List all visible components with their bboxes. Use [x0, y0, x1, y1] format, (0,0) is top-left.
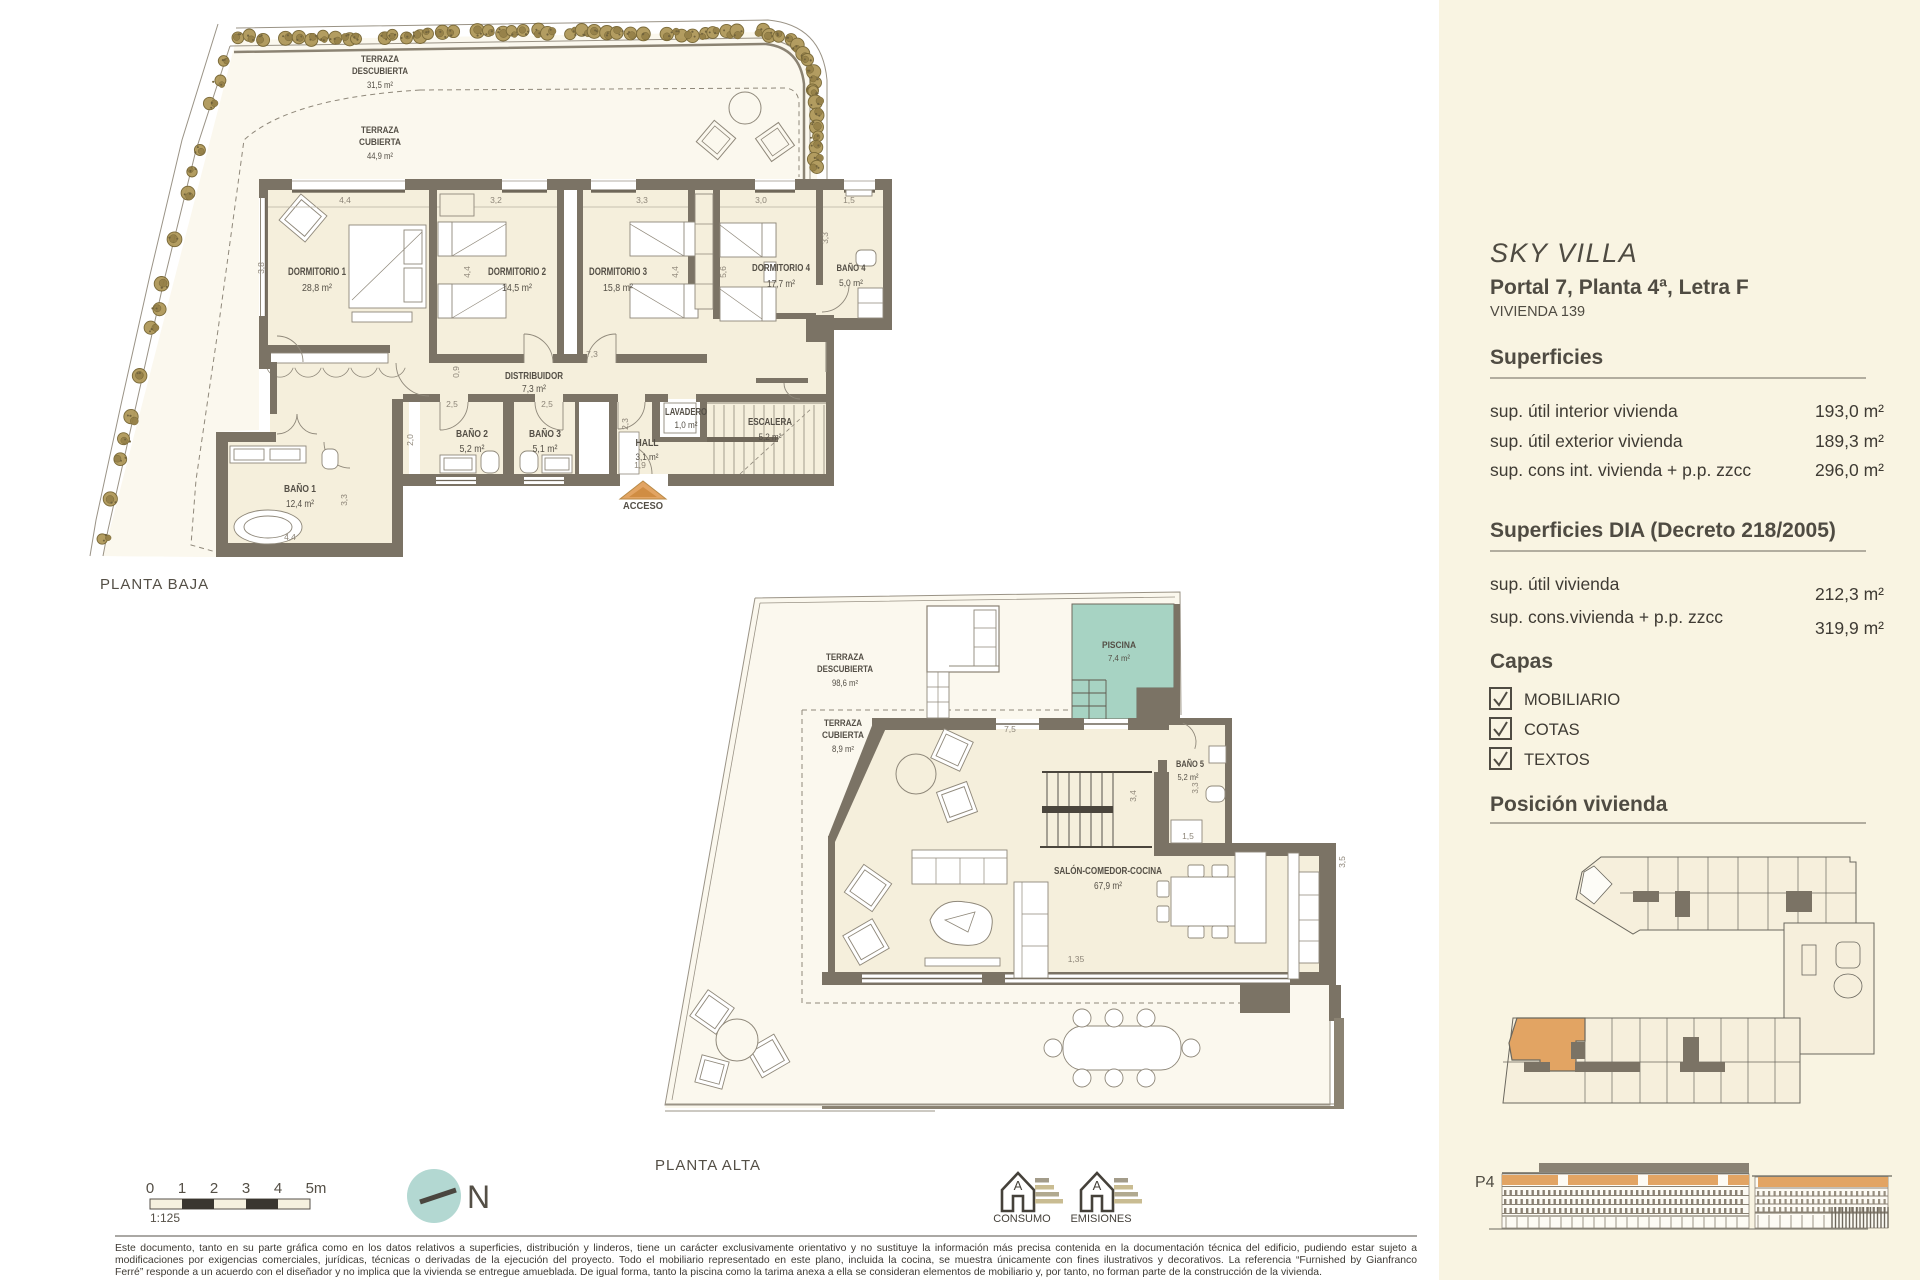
svg-text:14,5 m²: 14,5 m² [502, 282, 532, 294]
svg-text:DISTRIBUIDOR: DISTRIBUIDOR [505, 370, 563, 382]
svg-text:5,0 m²: 5,0 m² [839, 278, 863, 289]
svg-text:BAÑO 2: BAÑO 2 [456, 427, 488, 440]
svg-text:28,8 m²: 28,8 m² [302, 282, 332, 294]
svg-text:N: N [467, 1179, 490, 1215]
svg-text:1,9: 1,9 [634, 460, 646, 470]
svg-text:sup. cons.vivienda + p.p. zzcc: sup. cons.vivienda + p.p. zzcc [1490, 607, 1723, 627]
svg-text:DORMITORIO 1: DORMITORIO 1 [288, 266, 346, 278]
svg-text:Superficies: Superficies [1490, 346, 1603, 369]
svg-text:3,3: 3,3 [820, 232, 830, 244]
svg-text:COTAS: COTAS [1524, 721, 1580, 739]
svg-text:8,9 m²: 8,9 m² [832, 744, 854, 754]
svg-text:44,9 m²: 44,9 m² [367, 151, 393, 162]
svg-text:7,3: 7,3 [586, 349, 598, 359]
svg-text:3,4: 3,4 [1128, 790, 1138, 802]
svg-text:BAÑO 5: BAÑO 5 [1176, 759, 1204, 769]
svg-text:CUBIERTA: CUBIERTA [359, 137, 401, 148]
svg-text:2,0: 2,0 [405, 434, 415, 446]
svg-text:DORMITORIO 2: DORMITORIO 2 [488, 266, 546, 278]
svg-text:189,3 m²: 189,3 m² [1815, 431, 1884, 451]
svg-text:5,2 m²: 5,2 m² [1178, 772, 1199, 782]
svg-text:3: 3 [242, 1180, 250, 1197]
svg-text:A: A [1014, 1178, 1023, 1193]
svg-text:5,1 m²: 5,1 m² [533, 444, 559, 455]
svg-text:5,2 m²: 5,2 m² [460, 444, 486, 455]
svg-text:7,4 m²: 7,4 m² [1108, 653, 1130, 663]
svg-text:DESCUBIERTA: DESCUBIERTA [817, 664, 873, 675]
svg-text:3,3: 3,3 [636, 195, 648, 205]
svg-text:98,6 m²: 98,6 m² [832, 678, 858, 688]
svg-text:0,9: 0,9 [451, 366, 461, 378]
svg-text:TERRAZA: TERRAZA [826, 652, 864, 663]
svg-text:P4: P4 [1475, 1174, 1495, 1191]
svg-text:4,4: 4,4 [339, 195, 351, 205]
svg-text:LAVADERO: LAVADERO [665, 407, 707, 418]
svg-text:PLANTA BAJA: PLANTA BAJA [100, 576, 209, 593]
svg-text:TEXTOS: TEXTOS [1524, 751, 1590, 769]
svg-text:SALÓN-COMEDOR-COCINA: SALÓN-COMEDOR-COCINA [1054, 864, 1162, 877]
svg-text:4,4: 4,4 [670, 266, 680, 278]
svg-text:15,8 m²: 15,8 m² [603, 282, 633, 294]
svg-text:sup. útil interior vivienda: sup. útil interior vivienda [1490, 401, 1678, 421]
svg-text:TERRAZA: TERRAZA [361, 125, 399, 136]
svg-text:TERRAZA: TERRAZA [824, 718, 862, 729]
svg-text:7,5: 7,5 [1004, 724, 1016, 734]
svg-text:VIVIENDA 139: VIVIENDA 139 [1490, 304, 1585, 320]
svg-text:EMISIONES: EMISIONES [1070, 1213, 1131, 1225]
svg-text:3,0: 3,0 [755, 195, 767, 205]
svg-text:Portal 7, Planta 4ª, Letra F: Portal 7, Planta 4ª, Letra F [1490, 276, 1749, 299]
svg-text:3,3: 3,3 [1191, 782, 1200, 794]
svg-text:MOBILIARIO: MOBILIARIO [1524, 691, 1620, 709]
svg-text:296,0 m²: 296,0 m² [1815, 460, 1884, 480]
svg-text:5m: 5m [306, 1180, 327, 1197]
svg-text:1,35: 1,35 [1068, 954, 1085, 964]
svg-text:Superficies DIA (Decreto 218/2: Superficies DIA (Decreto 218/2005) [1490, 519, 1836, 542]
svg-text:5,2 m²: 5,2 m² [759, 432, 782, 443]
svg-text:DORMITORIO 4: DORMITORIO 4 [752, 262, 810, 274]
svg-text:PISCINA: PISCINA [1102, 640, 1136, 650]
svg-text:3,8: 3,8 [256, 262, 266, 274]
svg-text:212,3 m²: 212,3 m² [1815, 584, 1884, 604]
svg-text:BAÑO 1: BAÑO 1 [284, 482, 316, 495]
svg-text:1,5: 1,5 [843, 195, 855, 205]
svg-text:3,3: 3,3 [339, 494, 349, 506]
svg-text:3,2: 3,2 [490, 195, 502, 205]
svg-text:2,5: 2,5 [541, 399, 553, 409]
svg-text:4,4: 4,4 [284, 532, 296, 542]
svg-text:sup. útil exterior vivienda: sup. útil exterior vivienda [1490, 431, 1683, 451]
svg-text:67,9 m²: 67,9 m² [1094, 881, 1123, 892]
svg-text:319,9 m²: 319,9 m² [1815, 618, 1884, 638]
svg-text:BAÑO 3: BAÑO 3 [529, 427, 561, 440]
svg-text:2: 2 [210, 1180, 218, 1197]
svg-text:BAÑO 4: BAÑO 4 [837, 263, 867, 274]
svg-text:31,5 m²: 31,5 m² [367, 80, 393, 91]
svg-text:12,4 m²: 12,4 m² [286, 499, 315, 510]
svg-text:193,0 m²: 193,0 m² [1815, 401, 1884, 421]
svg-text:sup. cons int. vivienda + p.p.: sup. cons int. vivienda + p.p. zzcc [1490, 460, 1751, 480]
svg-text:TERRAZA: TERRAZA [361, 54, 399, 65]
svg-text:1,0 m²: 1,0 m² [675, 420, 698, 431]
svg-text:3,5: 3,5 [1337, 856, 1347, 868]
svg-text:A: A [1093, 1178, 1102, 1193]
svg-text:DESCUBIERTA: DESCUBIERTA [352, 66, 408, 77]
svg-text:Posición vivienda: Posición vivienda [1490, 793, 1668, 816]
svg-text:7,3 m²: 7,3 m² [522, 384, 547, 395]
svg-text:1:125: 1:125 [150, 1211, 180, 1225]
svg-text:Capas: Capas [1490, 650, 1553, 673]
svg-text:1,5: 1,5 [1182, 831, 1194, 841]
svg-text:0: 0 [146, 1180, 154, 1197]
svg-text:4,4: 4,4 [462, 266, 472, 278]
svg-text:4: 4 [274, 1180, 282, 1197]
svg-text:ACCESO: ACCESO [623, 500, 663, 512]
svg-text:2,3: 2,3 [620, 418, 630, 430]
svg-text:SKY VILLA: SKY VILLA [1490, 238, 1638, 268]
svg-text:2,5: 2,5 [446, 399, 458, 409]
svg-text:CUBIERTA: CUBIERTA [822, 730, 864, 741]
svg-text:ESCALERA: ESCALERA [748, 416, 792, 428]
svg-text:PLANTA ALTA: PLANTA ALTA [655, 1157, 761, 1174]
svg-text:HALL: HALL [636, 437, 659, 449]
svg-text:sup. útil vivienda: sup. útil vivienda [1490, 574, 1620, 594]
svg-text:5,6: 5,6 [718, 266, 728, 278]
svg-text:1: 1 [178, 1180, 186, 1197]
svg-text:17,7 m²: 17,7 m² [767, 279, 796, 290]
svg-text:DORMITORIO 3: DORMITORIO 3 [589, 266, 647, 278]
svg-text:CONSUMO: CONSUMO [993, 1213, 1051, 1225]
